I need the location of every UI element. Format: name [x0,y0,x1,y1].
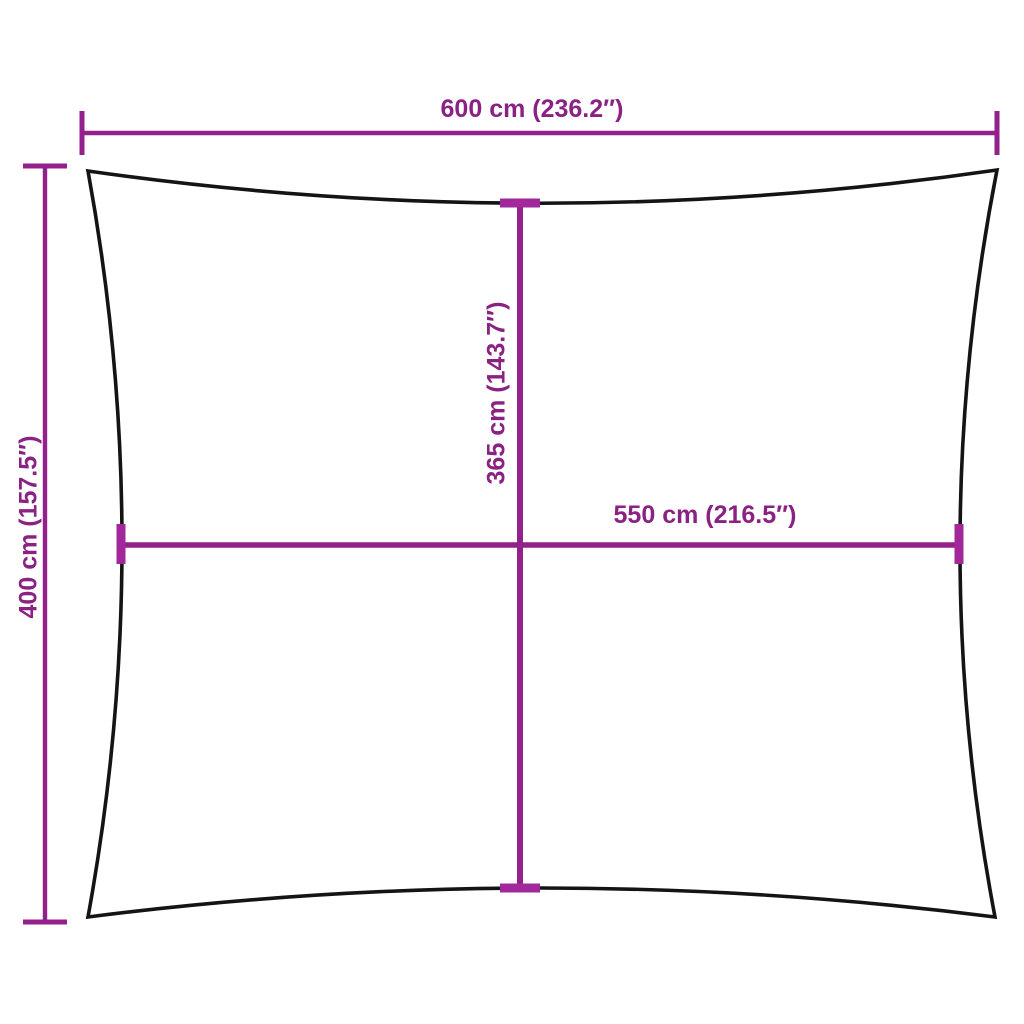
center-width-dimension-label: 550 cm (216.5″) [555,503,855,528]
center-height-dimension-label: 365 cm (143.7″) [485,302,510,485]
width-dimension-label: 600 cm (236.2″) [382,97,682,122]
dimension-diagram: 600 cm (236.2″) 400 cm (157.5″) 365 cm (… [0,0,1024,1024]
height-dimension-label: 400 cm (157.5″) [17,436,42,619]
diagram-graphics [0,0,1024,1024]
